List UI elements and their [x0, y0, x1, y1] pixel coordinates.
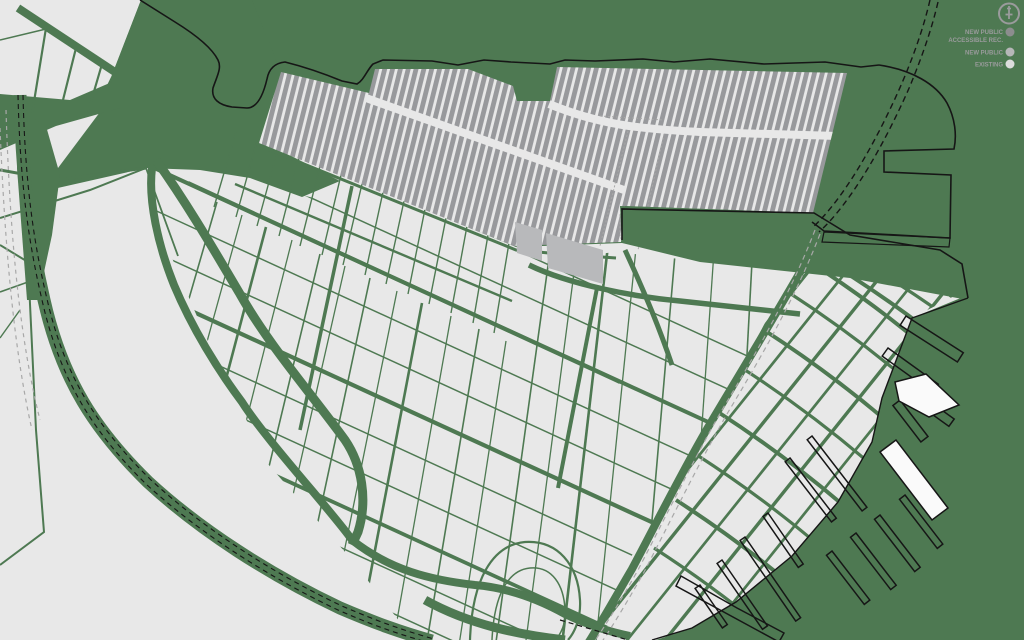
svg-text:ACCESSIBLE REC.: ACCESSIBLE REC. [948, 38, 1003, 44]
svg-text:EXISTING: EXISTING [975, 63, 1003, 69]
svg-text:NEW PUBLIC: NEW PUBLIC [965, 51, 1004, 57]
svg-text:NEW PUBLIC: NEW PUBLIC [965, 30, 1004, 36]
